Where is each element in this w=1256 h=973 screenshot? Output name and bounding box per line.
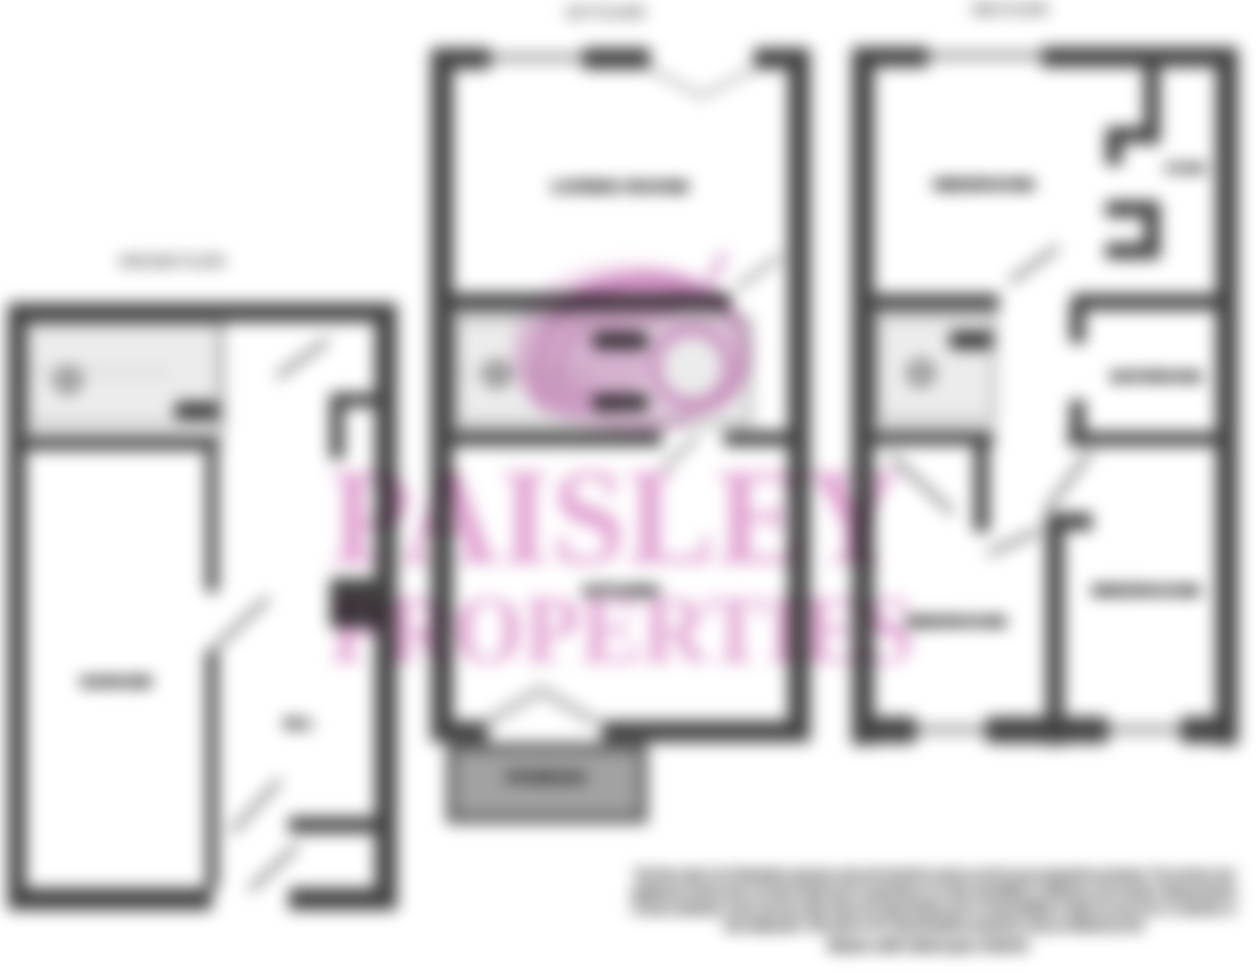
svg-text:BEDROOM: BEDROOM (906, 614, 1006, 629)
svg-text:GARAGE: GARAGE (80, 674, 152, 689)
svg-text:Made with Metropix ©2015: Made with Metropix ©2015 (828, 939, 1028, 953)
svg-text:BEDROOM: BEDROOM (1092, 583, 1200, 598)
svg-text:1ST FLOOR: 1ST FLOOR (565, 4, 645, 20)
svg-text:mis-statement. This plan is fo: mis-statement. This plan is for represen… (724, 919, 1144, 933)
svg-text:BEDROOM: BEDROOM (934, 177, 1034, 192)
svg-text:PROPERTIES: PROPERTIES (330, 576, 915, 683)
svg-text:GROUND FLOOR: GROUND FLOOR (119, 253, 225, 269)
svg-text:This floor plan is for illustr: This floor plan is for illustrative purp… (634, 868, 1234, 882)
svg-text:appliances shown have not been: appliances shown have not been tested an… (632, 885, 1237, 899)
svg-text:W.C.: W.C. (284, 716, 314, 731)
svg-text:2ND FLOOR: 2ND FLOOR (972, 1, 1048, 17)
svg-text:PORCH: PORCH (507, 770, 585, 785)
svg-text:PAISLEY: PAISLEY (330, 440, 903, 593)
svg-text:STORE: STORE (1165, 163, 1205, 175)
svg-text:BATHROOM: BATHROOM (1111, 369, 1201, 384)
svg-text:of doors windows rooms and any: of doors windows rooms and any other ite… (632, 902, 1237, 916)
svg-text:LIVING ROOM: LIVING ROOM (552, 179, 688, 194)
